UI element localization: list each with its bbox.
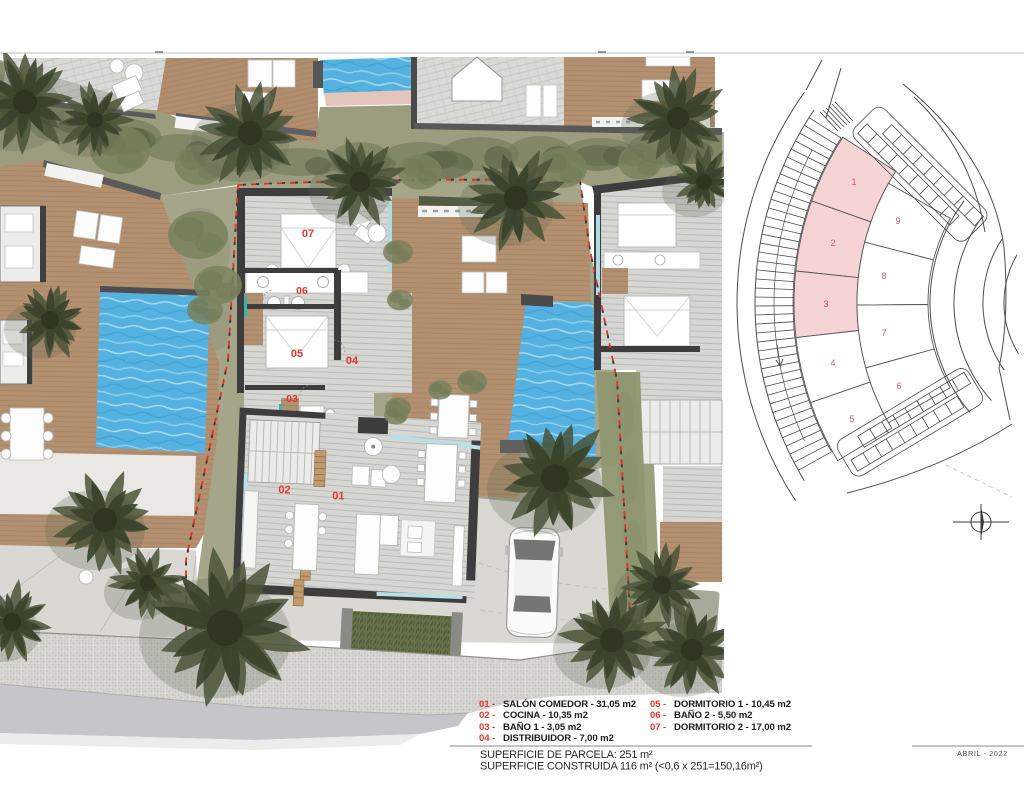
svg-text:6: 6 — [896, 381, 901, 391]
svg-text:BAÑO 2 - 5,50 m2: BAÑO 2 - 5,50 m2 — [674, 710, 752, 721]
svg-text:2: 2 — [830, 238, 835, 248]
svg-text:DORMITORIO 2 - 17,00 m2: DORMITORIO 2 - 17,00 m2 — [674, 722, 791, 733]
svg-text:8: 8 — [881, 271, 886, 281]
svg-text:5: 5 — [849, 414, 854, 424]
svg-text:03 -: 03 - — [479, 722, 495, 733]
svg-text:9: 9 — [895, 216, 900, 226]
svg-text:4: 4 — [830, 358, 835, 368]
svg-text:04: 04 — [346, 355, 359, 367]
svg-text:01 -: 01 - — [479, 699, 495, 710]
svg-text:ABRIL - 2022: ABRIL - 2022 — [957, 749, 1008, 758]
svg-text:SALÓN COMEDOR - 31,05 m2: SALÓN COMEDOR - 31,05 m2 — [503, 698, 636, 710]
svg-text:07: 07 — [302, 228, 314, 240]
svg-text:1: 1 — [851, 177, 856, 187]
svg-text:SUPERFICIE CONSTRUIDA 116 m² (: SUPERFICIE CONSTRUIDA 116 m² (<0,6 x 251… — [480, 761, 763, 773]
svg-text:01: 01 — [332, 490, 345, 502]
svg-text:DISTRIBUIDOR - 7,00 m2: DISTRIBUIDOR - 7,00 m2 — [503, 733, 614, 744]
svg-text:3: 3 — [823, 299, 828, 309]
svg-text:07 -: 07 - — [650, 722, 666, 733]
svg-text:DORMITORIO 1 - 10,45 m2: DORMITORIO 1 - 10,45 m2 — [674, 699, 791, 710]
svg-text:04 -: 04 - — [479, 733, 495, 744]
svg-text:06 -: 06 - — [650, 710, 666, 721]
svg-text:03: 03 — [286, 393, 298, 405]
svg-text:05 -: 05 - — [650, 699, 666, 710]
svg-text:7: 7 — [881, 328, 886, 338]
svg-text:COCINA - 10,35 m2: COCINA - 10,35 m2 — [503, 710, 588, 721]
svg-text:02: 02 — [278, 484, 291, 496]
svg-text:SUPERFICIE DE PARCELA: 251 m²: SUPERFICIE DE PARCELA: 251 m² — [480, 749, 653, 761]
svg-text:02 -: 02 - — [479, 710, 495, 721]
svg-text:06: 06 — [296, 285, 308, 297]
svg-text:BAÑO 1 - 3,05 m2: BAÑO 1 - 3,05 m2 — [503, 722, 581, 733]
svg-text:05: 05 — [291, 348, 303, 360]
